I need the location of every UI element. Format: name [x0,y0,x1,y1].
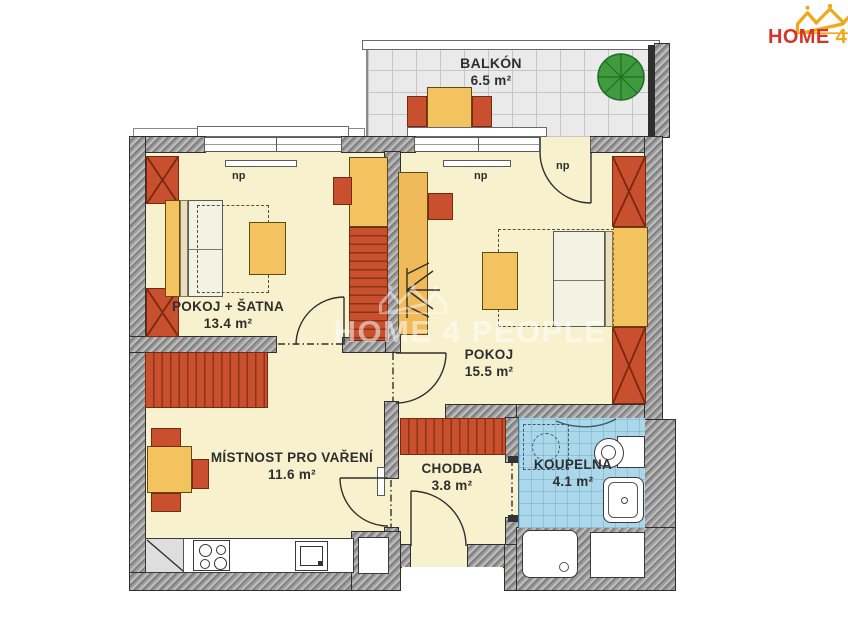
window-right [414,137,540,152]
wall-balcony-right [655,44,669,137]
brand-word-home: HOME [768,26,830,48]
bathroom-sink-drain [621,497,628,504]
bed2-pillow-line [554,280,604,281]
cabinet-right-room [398,172,428,335]
bed1-edge [180,200,188,297]
window-left-frame-line [205,144,341,145]
burner-2 [200,559,210,569]
shower-drain [559,562,569,572]
kitchen-sink-drain [318,561,322,565]
entrance-vestibule [402,567,503,627]
kitchen-table [147,446,192,493]
wall-bottom-left [130,573,354,590]
wall-top-middle [342,137,415,152]
brand-logo-text: HOME 4 PEOPLE [768,26,848,49]
balcony-door-opening [540,137,591,152]
desk-left-room [349,157,388,227]
window-right-divider [478,138,479,151]
chodba-name: CHODBA [392,461,512,476]
left-room-name: POKOJ + ŠATNA [158,299,298,314]
wardrobe-right-top [612,156,646,227]
window-left [204,137,342,152]
radiator-left-room [225,160,297,167]
utility-box-left [358,537,389,574]
bed1-frame [165,200,180,297]
bed2-edge [605,231,613,327]
chodba-area: 3.8 m² [392,478,512,493]
bathroom-name: KOUPELNA [513,457,633,472]
nightstand-left-room [249,222,286,275]
wardrobe-kitchen-top [145,352,268,408]
wall-left [130,137,145,590]
window-right-frame-line [415,144,539,145]
chair-desk-left-room [333,177,352,205]
kitchen-name: MÍSTNOST PRO VAŘENÍ [192,450,392,465]
wall-leftroom-bottom [130,337,276,352]
right-room-area: 15.5 m² [429,364,549,379]
kitchen-corner-unit [146,539,184,572]
window-left-sill [197,126,349,137]
pocket-door-handle-bottom [508,515,518,522]
watermark-text: HOME 4 PEOPLE [320,314,620,350]
bed2-frame [613,227,648,327]
brand-word-4: 4 [836,26,848,48]
balcony-name: BALKÓN [431,56,551,71]
window-right-sill [407,127,547,137]
balcony-chair-left [407,96,427,127]
wall-pokoj-bottom [446,405,517,418]
balcony-right-edge [648,45,655,137]
bathroom-area: 4.1 m² [513,474,633,489]
wall-koupelna-top [517,405,660,418]
burner-1 [199,544,212,557]
wardrobe-chodba [400,418,506,455]
np-label-left-room: np [232,170,245,182]
shower-tray [522,530,578,578]
bed2-mattress [553,231,605,327]
balcony-chair-right [472,96,492,127]
kitchen-chair-top [151,428,181,447]
burner-4 [214,557,227,570]
radiator-right-room [443,160,511,167]
burner-3 [216,545,226,555]
table-right-room [482,252,518,310]
np-label-balcony-door: np [556,160,569,172]
utility-box-right [590,532,645,578]
kitchen-chair-bottom [151,493,181,512]
kitchen-area: 11.6 m² [192,467,392,482]
floor-plan: BALKÓN 6.5 m² np POKOJ [0,0,848,636]
np-label-right-room: np [474,170,487,182]
left-room-area: 13.4 m² [158,316,298,331]
chair-desk-right-room [428,193,453,220]
stove [193,540,230,571]
wardrobe-left-top [146,156,179,204]
window-left-divider [276,138,277,151]
balcony-railing [362,40,660,50]
kitchen-sink [295,541,328,571]
balcony-area: 6.5 m² [431,73,551,88]
